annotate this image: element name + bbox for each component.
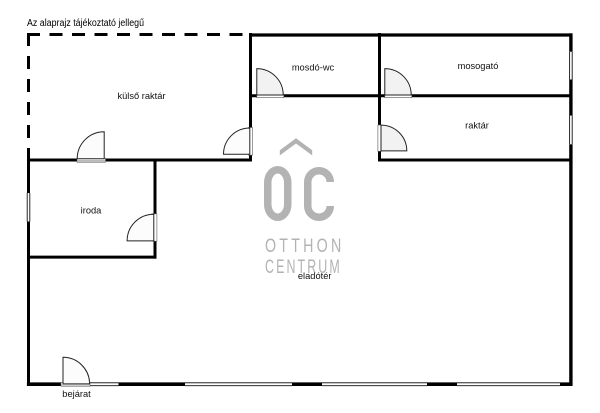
svg-text:OTTHON: OTTHON [265,235,344,256]
svg-text:eladótér: eladótér [298,271,332,281]
svg-text:Az alaprajz tájékoztató jelleg: Az alaprajz tájékoztató jellegű [27,18,144,29]
svg-text:raktár: raktár [465,121,489,131]
svg-text:mosdó-wc: mosdó-wc [292,63,335,73]
svg-text:iroda: iroda [81,206,103,216]
svg-text:külső raktár: külső raktár [117,91,165,101]
svg-text:bejárat: bejárat [62,389,91,399]
svg-text:mosogató: mosogató [458,61,499,71]
